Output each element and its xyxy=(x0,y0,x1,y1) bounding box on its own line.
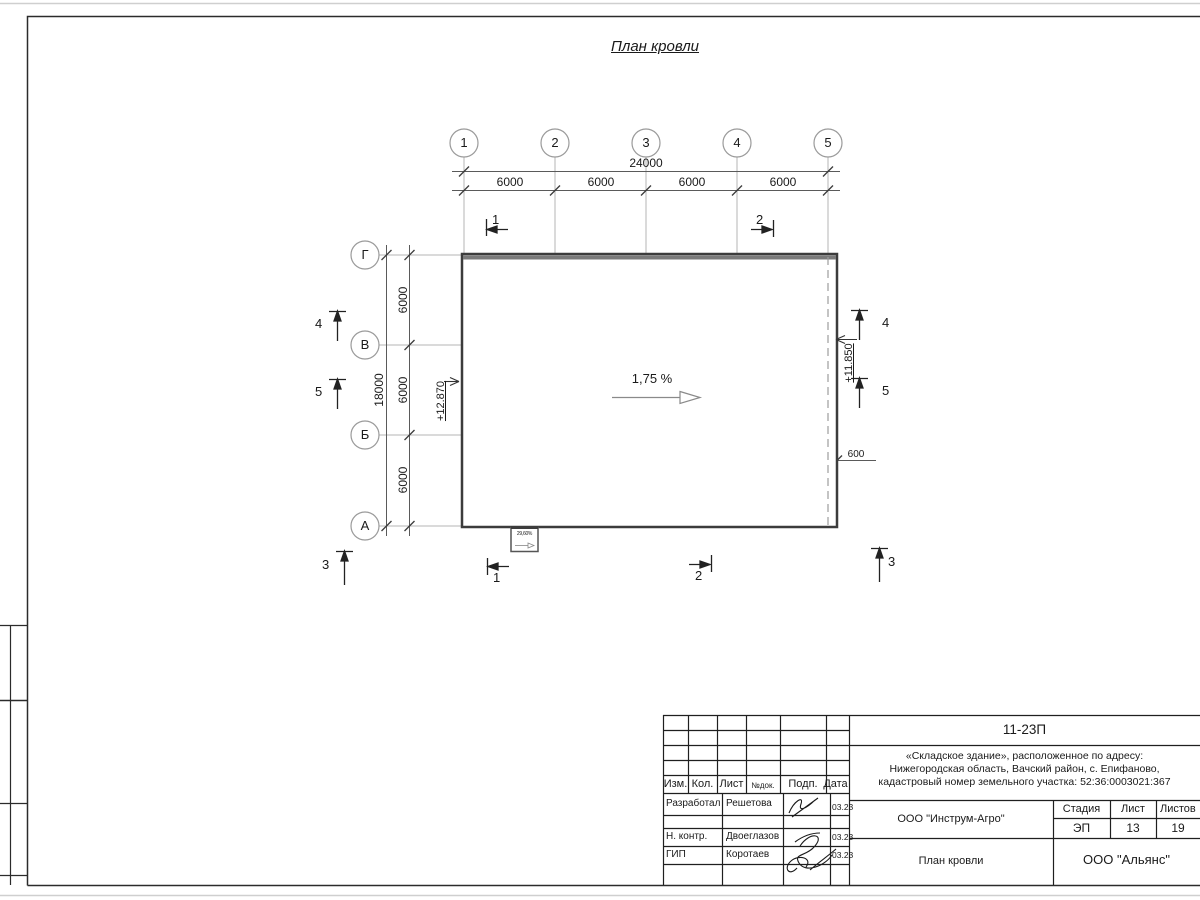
dim-top-seg-4: 6000 xyxy=(753,175,813,189)
slope-label: 1,75 % xyxy=(612,371,692,386)
view-mark-right-5: 5 xyxy=(882,383,889,398)
axis-bubble-5: 5 xyxy=(814,135,842,150)
view-mark-left-4: 4 xyxy=(315,316,322,331)
stage-label: Стадия xyxy=(1053,803,1110,815)
sheet-value: 13 xyxy=(1110,821,1156,835)
dim-left-total: 18000 xyxy=(372,360,386,420)
axis-bubble-g: Г xyxy=(351,247,379,262)
titleblock-role-ncontrol: Н. контр. xyxy=(666,831,707,842)
project-address-line-1: «Складское здание», расположенное по адр… xyxy=(853,750,1196,762)
project-address-line-3: кадастровый номер земельного участка: 52… xyxy=(853,776,1196,788)
dim-left-seg-3: 6000 xyxy=(396,450,410,510)
section-mark-bottom-1: 1 xyxy=(493,570,500,585)
titleblock-role-developer: Разработал xyxy=(666,798,720,809)
design-org: ООО "Инструм-Агро" xyxy=(849,813,1053,825)
axis-bubble-b: Б xyxy=(351,427,379,442)
axis-bubble-a: А xyxy=(351,518,379,533)
dim-left-seg-2: 6000 xyxy=(396,360,410,420)
dim-left-seg-1: 6000 xyxy=(396,270,410,330)
sheet-label: Лист xyxy=(1110,803,1156,815)
dim-top-seg-3: 6000 xyxy=(662,175,722,189)
titleblock-date-developer: 03.23 xyxy=(832,802,853,812)
elevation-right: +11.850 xyxy=(843,331,855,395)
titleblock-col-kol: Кол. xyxy=(688,778,717,790)
titleblock-role-gip: ГИП xyxy=(666,849,686,860)
titleblock-col-izm: Изм. xyxy=(663,778,688,790)
titleblock-name-developer: Решетова xyxy=(726,798,772,809)
stage-value: ЭП xyxy=(1053,821,1110,835)
titleblock-name-ncontrol: Двоеглазов xyxy=(726,831,779,842)
axis-bubble-2: 2 xyxy=(541,135,569,150)
view-mark-left-5: 5 xyxy=(315,384,322,399)
company-name: ООО "Альянс" xyxy=(1053,852,1200,867)
axis-bubble-v: В xyxy=(351,337,379,352)
doc-number: 11-23П xyxy=(849,722,1200,737)
dim-top-seg-1: 6000 xyxy=(480,175,540,189)
titleblock-col-data: Дата xyxy=(822,778,849,790)
titleblock-date-ncontrol: 03.23 xyxy=(832,832,853,842)
axis-bubble-1: 1 xyxy=(450,135,478,150)
sheets-value: 19 xyxy=(1156,821,1200,835)
dim-overhang: 600 xyxy=(840,449,872,460)
view-mark-right-4: 4 xyxy=(882,315,889,330)
axis-bubble-4: 4 xyxy=(723,135,751,150)
view-mark-bottom-left-3: 3 xyxy=(322,557,329,572)
dim-top-seg-2: 6000 xyxy=(571,175,631,189)
drawing-sheet: План кровли 1 2 3 4 5 Г В Б А 24000 6000… xyxy=(0,0,1200,900)
axis-bubble-3: 3 xyxy=(632,135,660,150)
elevation-left: +12.870 xyxy=(435,369,447,433)
signature-strokes xyxy=(787,798,836,872)
titleblock-col-ndoc: №док. xyxy=(746,781,780,790)
dim-top-total: 24000 xyxy=(611,156,681,170)
section-mark-top-2: 2 xyxy=(756,212,763,227)
sheet-title: План кровли xyxy=(555,38,755,55)
project-address-line-2: Нижегородская область, Вачский район, с.… xyxy=(853,763,1196,775)
titleblock-col-podp: Подп. xyxy=(780,778,826,790)
section-mark-top-1: 1 xyxy=(492,212,499,227)
titleblock-col-list: Лист xyxy=(717,778,746,790)
titleblock-name-gip: Коротаев xyxy=(726,849,769,860)
canopy-slope-label: 29,60% xyxy=(510,531,539,537)
sheet-name: План кровли xyxy=(849,855,1053,867)
view-mark-bottom-right-3: 3 xyxy=(888,554,895,569)
section-mark-bottom-2: 2 xyxy=(695,568,702,583)
sheets-label: Листов xyxy=(1160,803,1196,815)
